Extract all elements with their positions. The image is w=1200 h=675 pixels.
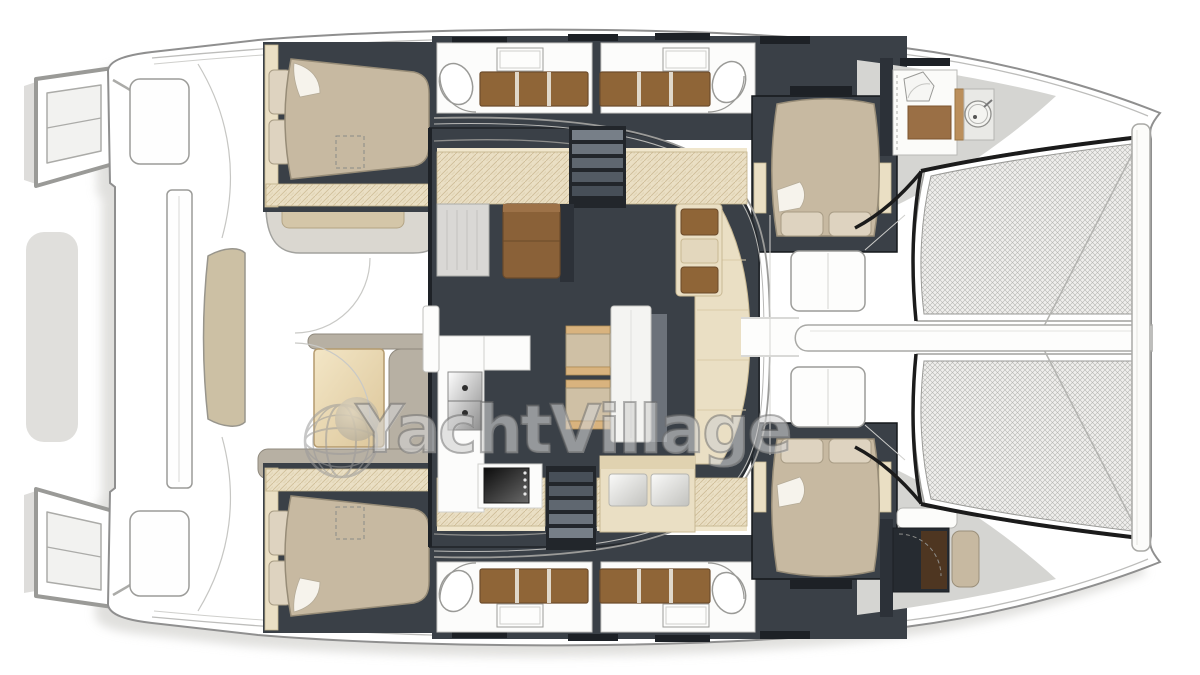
tv-cabinet (437, 204, 489, 276)
dinette-chair (566, 326, 610, 375)
vanity-edge (955, 89, 964, 140)
aft-sliding-door (423, 306, 439, 372)
steps-port (569, 126, 626, 208)
deck-hatch-starboard (130, 511, 189, 596)
port-aft-cabin (263, 42, 432, 212)
stern-bench (204, 249, 246, 426)
berth-mattress (600, 72, 710, 106)
shower-mat (908, 106, 951, 139)
armchair-cushion (681, 209, 718, 235)
stern-shadow (26, 232, 78, 442)
sofa-cushion (609, 474, 647, 506)
seat (952, 531, 979, 587)
pillow (781, 212, 823, 236)
stove (484, 468, 529, 503)
salon (423, 118, 770, 558)
center-beam (795, 325, 1152, 351)
port-bow-cabin (752, 86, 897, 252)
storage-locker (921, 531, 947, 589)
forward-crossbeam (1132, 124, 1150, 551)
cockpit-sofa-arm (308, 334, 434, 349)
dinette-chair (566, 380, 610, 429)
berth-mattress (480, 72, 588, 106)
berth-mattress (480, 569, 588, 603)
platform-step (47, 85, 101, 163)
berth-mattress (600, 569, 710, 603)
dinette (566, 306, 667, 442)
pillow (781, 439, 823, 463)
platform-step (47, 512, 101, 590)
starboard-bow-cabin (752, 423, 897, 589)
yacht-floorplan-image: YachtVillage (0, 0, 1200, 675)
sofa-cushion (651, 474, 689, 506)
starboard-aft-cabin (263, 463, 432, 633)
floorplan-drawing (0, 0, 1200, 675)
armchair-seat (681, 239, 718, 263)
deck-hatch-port (130, 79, 189, 164)
armchair-cushion (681, 267, 718, 293)
steps-starboard (546, 466, 596, 550)
